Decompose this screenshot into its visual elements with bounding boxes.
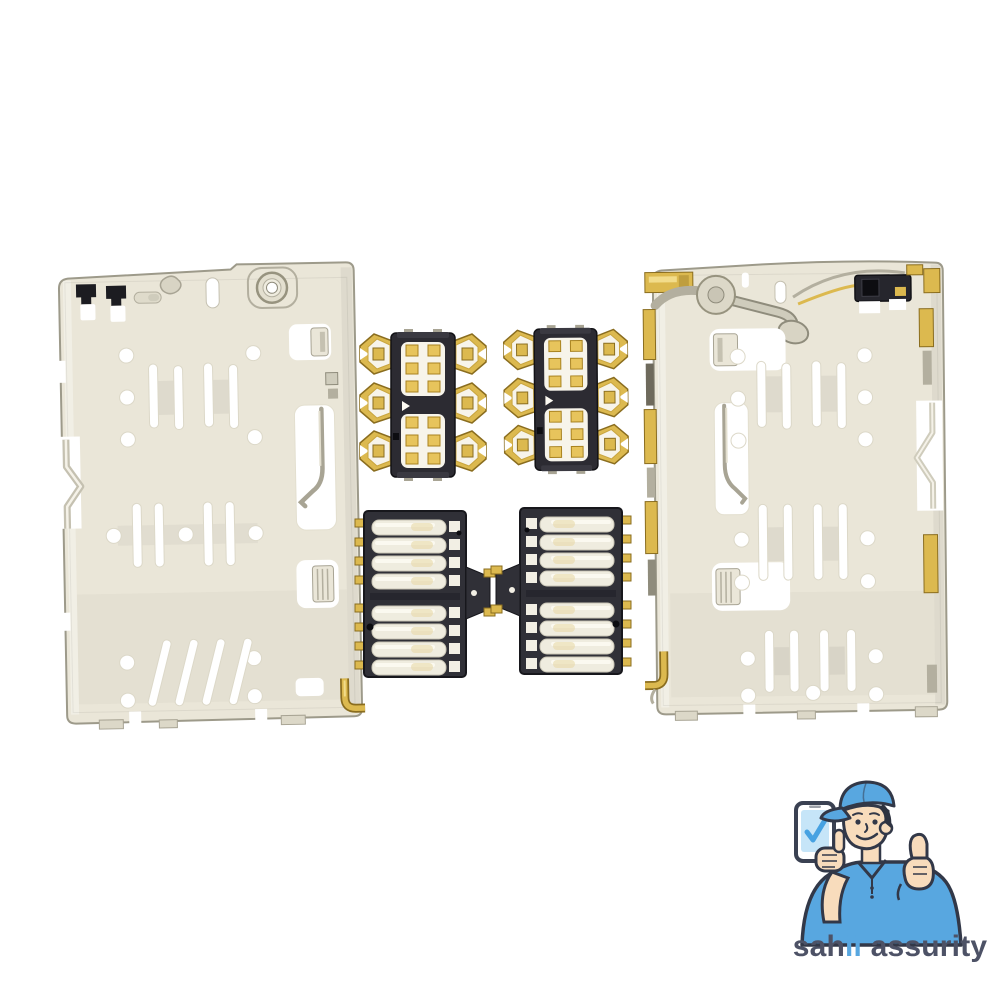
punched-hole (160, 276, 181, 294)
sim-tray-shield-left (51, 259, 368, 735)
brand-wordmark: sahii assurity (768, 930, 1000, 964)
side-cutout-lower (712, 562, 790, 611)
emboss-pill (134, 292, 161, 304)
edge-notch (56, 361, 65, 383)
left-edge-contacts (643, 310, 658, 596)
product-photo: sahii assurity (0, 0, 1000, 1000)
sim-tray-shield-right (643, 250, 960, 723)
brand-mascot (788, 770, 993, 945)
sim-connector-bottom-left (355, 509, 497, 679)
edge-notch (61, 613, 70, 631)
sim-connector-top-right (496, 324, 635, 474)
oval-hole (775, 281, 786, 303)
left-spring-arm (57, 436, 82, 528)
side-cutout-upper (709, 328, 785, 371)
side-spring-cutout (714, 403, 749, 515)
oval-hole (206, 278, 220, 308)
slot-hole (742, 273, 749, 288)
sim-connector-bottom-right (489, 506, 631, 676)
side-spring-cutout (294, 405, 336, 531)
brand-name-part2: assurity (862, 930, 987, 963)
brand-name-accent: ii (845, 930, 862, 963)
bottom-cutout (295, 678, 323, 697)
brand-name-part1: sah (793, 930, 845, 963)
side-cutout-upper (289, 324, 332, 361)
sim-connector-top-left (357, 329, 489, 481)
side-cutout-lower (296, 560, 339, 609)
